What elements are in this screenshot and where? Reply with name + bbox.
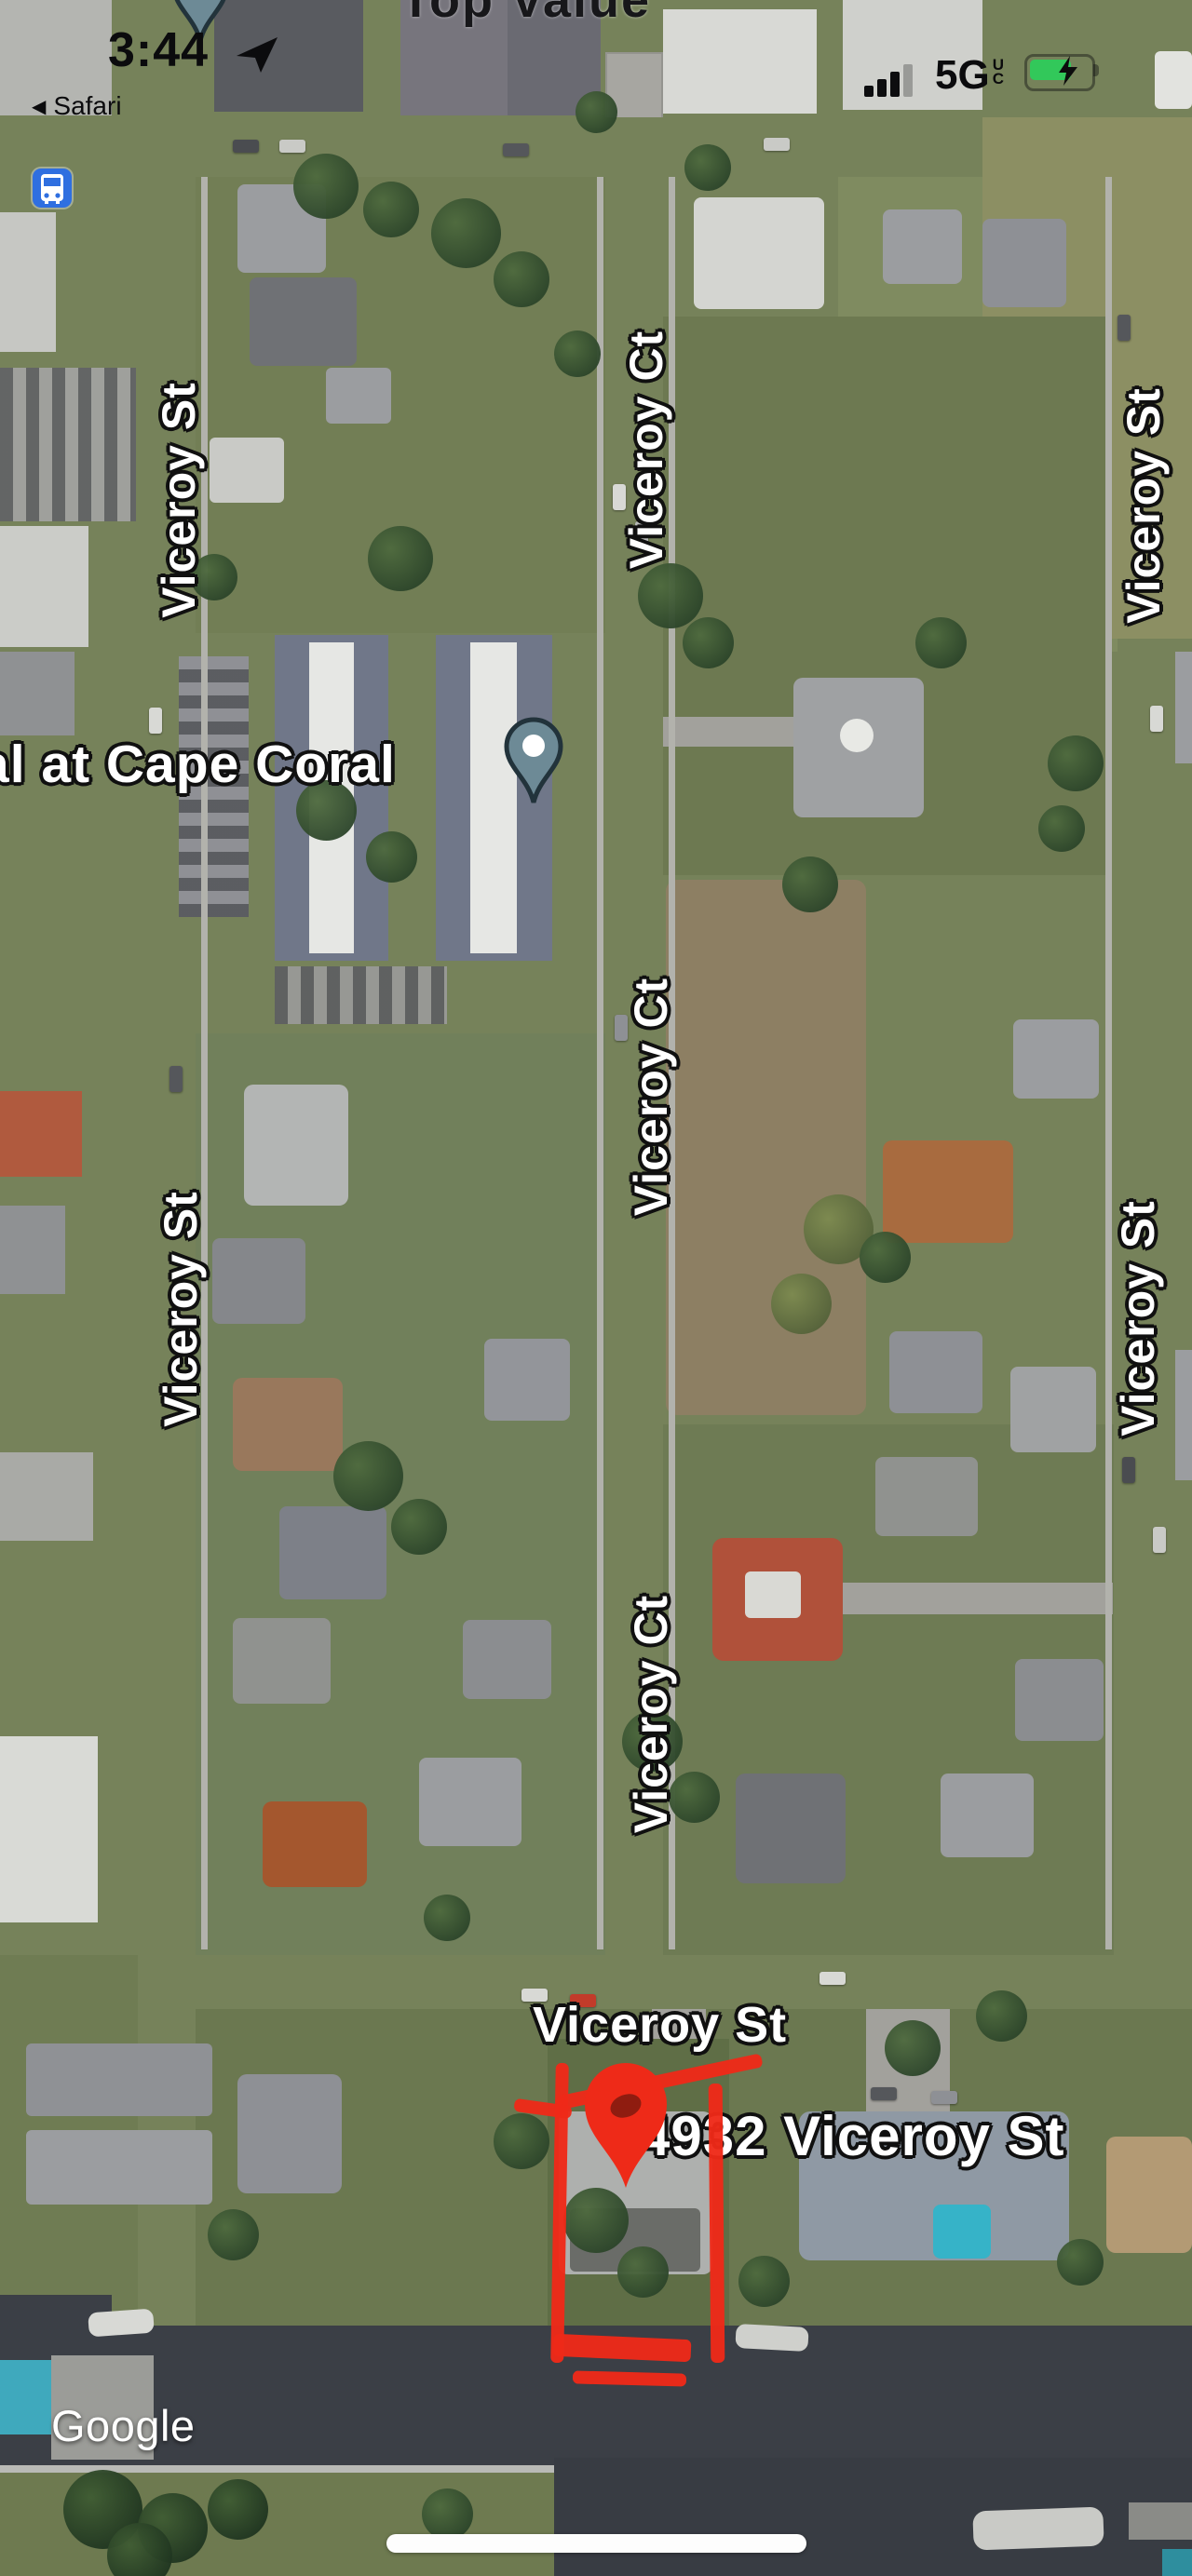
map-terrain-feature (1162, 2549, 1192, 2576)
map-terrain-feature (1155, 51, 1192, 109)
car (819, 1972, 846, 1985)
bus-stop-icon[interactable] (33, 169, 72, 208)
back-link-label: Safari (53, 91, 121, 121)
map-terrain-feature (0, 1452, 93, 1541)
tree (976, 1990, 1027, 2042)
tree (860, 1232, 911, 1283)
map-terrain-feature (1105, 177, 1112, 1949)
tree (391, 1499, 447, 1555)
map-pin-icon[interactable] (170, 0, 230, 45)
street-label-viceroy-ct-center-upper: Viceroy Ct (619, 330, 673, 569)
car (1153, 1527, 1166, 1553)
street-label-viceroy-st-bottom: Viceroy St (533, 1996, 787, 2054)
map-terrain-feature (694, 197, 824, 309)
map-terrain-feature (663, 717, 793, 747)
map-terrain-feature (1013, 1019, 1099, 1099)
tree (617, 2246, 669, 2298)
tree (1038, 805, 1085, 852)
maps-satellite-view: Top Value Viceroy St Viceroy Ct Viceroy … (0, 0, 1192, 2576)
tree (366, 831, 417, 883)
car (149, 708, 162, 734)
tree (683, 617, 734, 668)
bus-glyph (33, 169, 72, 208)
back-triangle-icon: ◀ (32, 95, 46, 118)
street-label-viceroy-ct-center-middle: Viceroy Ct (624, 978, 678, 1216)
tree (363, 182, 419, 237)
tree (208, 2209, 259, 2260)
map-terrain-feature (1175, 652, 1192, 763)
car (1122, 1457, 1135, 1483)
map-terrain-feature (597, 177, 603, 1949)
map-terrain-feature (982, 219, 1066, 307)
map-terrain-feature (0, 2360, 51, 2434)
tree (576, 91, 617, 133)
home-indicator[interactable] (386, 2534, 806, 2553)
map-terrain-feature (0, 212, 56, 352)
map-terrain-feature (972, 2507, 1104, 2551)
map-terrain-feature (233, 1618, 331, 1704)
tree (293, 154, 359, 219)
car (1150, 706, 1163, 732)
car (931, 2091, 957, 2104)
tree (494, 2113, 549, 2169)
car (764, 138, 790, 151)
map-terrain-feature (210, 438, 284, 503)
tree (494, 251, 549, 307)
tree (885, 2020, 941, 2076)
street-label-viceroy-st-left-upper: Viceroy St (152, 382, 206, 618)
map-terrain-feature (0, 1206, 65, 1294)
map-terrain-feature (889, 1331, 982, 1413)
car (1117, 315, 1131, 341)
map-terrain-feature (883, 1140, 1013, 1243)
tree (915, 617, 967, 668)
map-terrain-feature (214, 0, 363, 112)
map-terrain-feature (840, 719, 874, 752)
map-canvas[interactable]: Top Value Viceroy St Viceroy Ct Viceroy … (0, 0, 1192, 2576)
map-terrain-feature (735, 2324, 808, 2352)
map-pin-icon[interactable] (503, 717, 564, 806)
map-terrain-feature (212, 1238, 305, 1324)
tree (431, 198, 501, 268)
map-terrain-feature (88, 2309, 155, 2338)
map-terrain-feature (0, 652, 74, 735)
map-terrain-feature (1015, 1659, 1104, 1741)
street-label-viceroy-st-right-lower: Viceroy St (1111, 1200, 1165, 1436)
tree (782, 856, 838, 912)
map-terrain-feature (0, 368, 136, 521)
map-terrain-feature (279, 1506, 386, 1599)
map-terrain-feature (26, 2043, 212, 2116)
place-label-cape-coral: al at Cape Coral (0, 734, 396, 795)
street-label-viceroy-st-left-lower: Viceroy St (154, 1191, 208, 1427)
tree (638, 563, 703, 628)
map-terrain-feature (0, 526, 88, 647)
street-label-viceroy-ct-center-lower: Viceroy Ct (624, 1595, 678, 1833)
map-terrain-feature (275, 966, 447, 1024)
map-terrain-feature (463, 1620, 551, 1699)
car (871, 2087, 897, 2100)
tree (333, 1441, 403, 1511)
map-terrain-feature (663, 9, 817, 114)
map-terrain-feature (1175, 1350, 1192, 1480)
tree (368, 526, 433, 591)
back-to-safari-link[interactable]: ◀ Safari (32, 91, 122, 121)
tree (554, 330, 601, 377)
map-terrain-feature (419, 1758, 521, 1846)
tree (684, 144, 731, 191)
map-terrain-feature (666, 880, 866, 1415)
map-terrain-feature (933, 2205, 991, 2259)
tree (424, 1895, 470, 1941)
tree (738, 2256, 790, 2307)
map-terrain-feature (745, 1571, 801, 1618)
car (503, 143, 529, 156)
tree (422, 2488, 473, 2540)
car (233, 140, 259, 153)
map-terrain-feature (883, 209, 962, 284)
map-terrain-feature (1106, 2137, 1192, 2253)
map-terrain-feature (233, 1378, 343, 1471)
map-terrain-feature (843, 0, 982, 110)
street-label-viceroy-st-right-upper: Viceroy St (1117, 387, 1171, 624)
car (279, 140, 305, 153)
map-terrain-feature (1129, 2502, 1192, 2540)
tree (563, 2188, 629, 2253)
map-terrain-feature (263, 1801, 367, 1887)
map-terrain-feature (941, 1774, 1034, 1857)
map-terrain-feature (875, 1457, 978, 1536)
map-terrain-feature (250, 277, 357, 366)
map-terrain-feature (244, 1085, 348, 1206)
google-watermark: Google (51, 2400, 196, 2451)
map-terrain-feature (0, 1736, 98, 1922)
tree (771, 1274, 832, 1334)
partial-top-place-label: Top Value (400, 0, 651, 29)
map-terrain-feature (26, 2130, 212, 2205)
map-terrain-feature (843, 1583, 1113, 1614)
tree (1057, 2239, 1104, 2286)
map-terrain-feature (0, 1091, 82, 1177)
parcel-outline-right-line (709, 2084, 725, 2363)
map-terrain-feature (1010, 1367, 1096, 1452)
tree (208, 2479, 268, 2540)
map-terrain-feature (484, 1339, 570, 1421)
tree (1048, 735, 1104, 791)
map-terrain-feature (736, 1774, 846, 1883)
red-address-marker-icon[interactable] (576, 2059, 676, 2190)
car (169, 1066, 183, 1092)
map-terrain-feature (237, 2074, 342, 2193)
map-terrain-feature (326, 368, 391, 424)
address-label: 4932 Viceroy St (639, 2104, 1065, 2168)
